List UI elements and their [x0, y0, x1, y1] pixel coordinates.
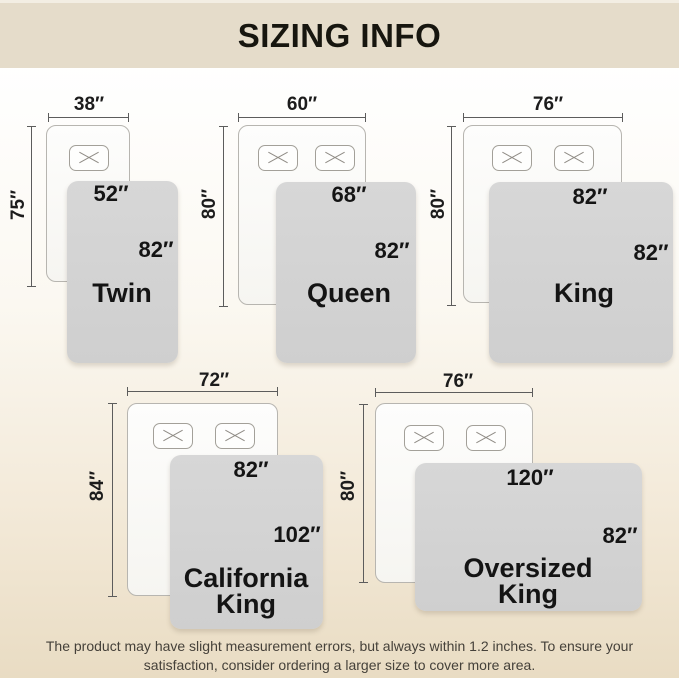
- height-measure-line: [363, 404, 364, 583]
- blanket-height-label: 82″: [602, 523, 637, 549]
- bed-height-label: 80″: [338, 471, 360, 501]
- footer-note: The product may have slight measurement …: [0, 637, 679, 674]
- pillow-x-icon: [405, 426, 443, 450]
- pillow-icon: [404, 425, 444, 451]
- size-diagram-oversized-king: 76″ 80″ 120″ 82″ Oversized King: [0, 0, 679, 678]
- diagram-canvas: 38″ 75″ 52″ 82″ Twin 60″ 80″ 68″ 82″ Que…: [0, 0, 679, 678]
- pillow-x-icon: [467, 426, 505, 450]
- bed-width-label: 76″: [443, 371, 473, 393]
- disclaimer-line-1: The product may have slight measurement …: [46, 638, 633, 654]
- pillow-icon: [466, 425, 506, 451]
- sizing-info-page: SIZING INFO 38″ 75″ 52″ 82″ Twin 60″ 80″…: [0, 0, 679, 678]
- disclaimer-line-2: satisfaction, consider ordering a larger…: [144, 657, 535, 673]
- disclaimer-text: The product may have slight measurement …: [0, 637, 679, 674]
- blanket-width-label: 120″: [506, 465, 553, 491]
- size-name-label: Oversized King: [433, 555, 623, 607]
